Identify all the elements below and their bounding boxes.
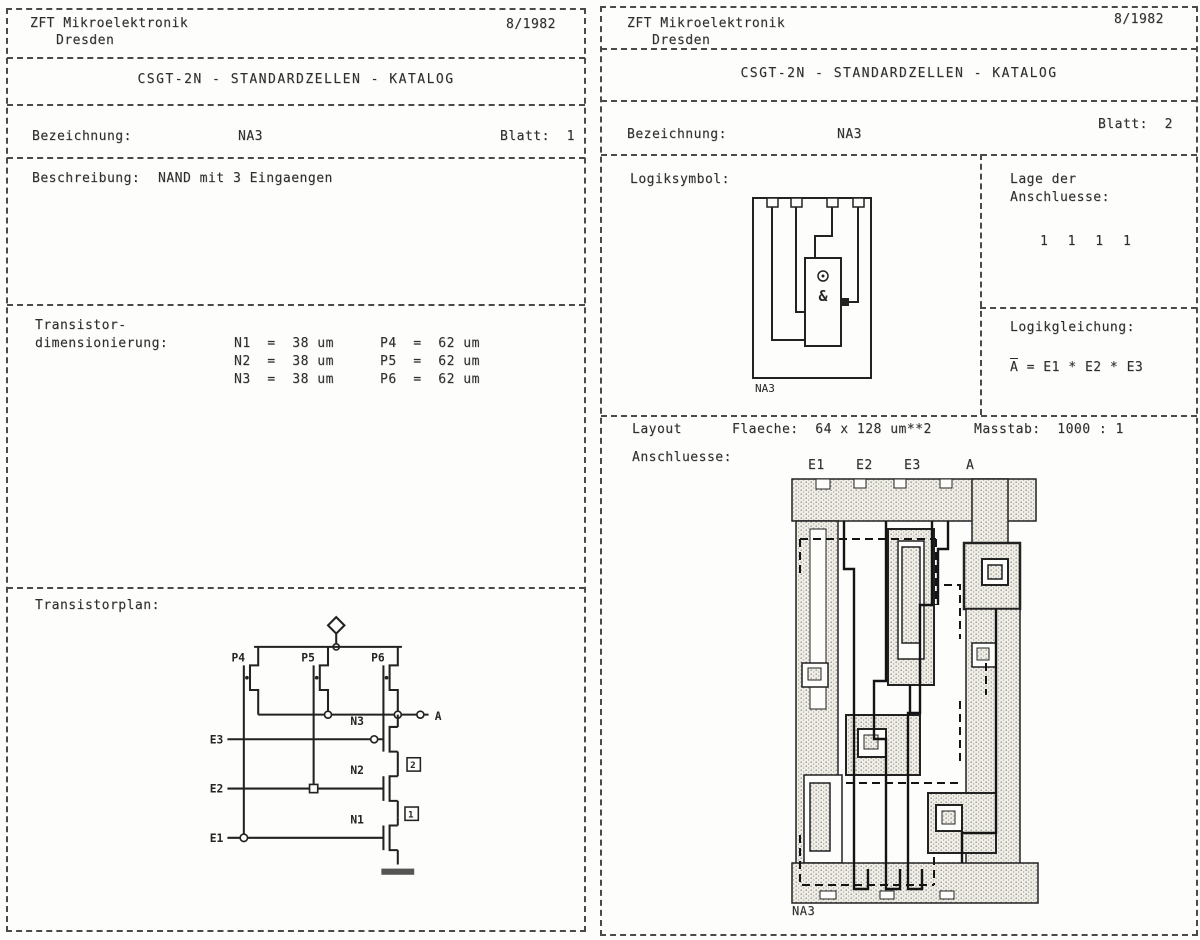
scanned-datasheet: ZFT Mikroelektronik Dresden 8/1982 CSGT-… — [0, 0, 1200, 940]
transistorplan-label: Transistorplan: — [35, 598, 160, 613]
divider — [7, 104, 585, 106]
nmos-n2 — [390, 776, 398, 817]
doc-date: 8/1982 — [1114, 12, 1164, 27]
lage-label-1: Lage der — [1010, 172, 1077, 187]
nmos-n3 — [390, 727, 398, 768]
label-a: A — [435, 710, 442, 723]
lage-label-2: Anschluesse: — [1010, 190, 1110, 205]
transistor-schematic: P4 P5 P6 N3 N2 N1 E3 E2 E1 A 2 1 — [163, 612, 493, 884]
blatt-number: Blatt: 1 — [500, 129, 575, 144]
dim-p4: P4 = 62 um — [380, 336, 480, 351]
beschreibung-value: NAND mit 3 Eingaengen — [158, 171, 333, 186]
label-p4: P4 — [232, 651, 246, 664]
pad-label-e1: E1 — [808, 458, 825, 473]
divider — [601, 100, 1197, 102]
logikgleichung-label: Logikgleichung: — [1010, 320, 1135, 335]
logikgleichung-eq: A = E1 * E2 * E3 — [1010, 360, 1143, 375]
label-e3: E3 — [210, 733, 224, 746]
label-p6: P6 — [371, 651, 385, 664]
cell-name: NA3 — [837, 127, 862, 142]
output-dot — [841, 298, 849, 306]
divider — [601, 415, 1197, 417]
nmos-n1 — [390, 825, 398, 864]
org-name: ZFT Mikroelektronik — [30, 16, 188, 31]
cell-layout — [790, 476, 1042, 906]
pin-notch — [827, 198, 838, 207]
dim-p6: P6 = 62 um — [380, 372, 480, 387]
dim-n3: N3 = 38 um — [234, 372, 334, 387]
beschreibung-label: Beschreibung: — [32, 171, 140, 186]
divider — [7, 587, 585, 589]
catalog-title: CSGT-2N - STANDARDZELLEN - KATALOG — [602, 66, 1196, 81]
label-n3: N3 — [350, 715, 364, 728]
route-e1 — [772, 207, 805, 340]
masstab-value: Masstab: 1000 : 1 — [974, 422, 1124, 437]
page-blatt-1: ZFT Mikroelektronik Dresden 8/1982 CSGT-… — [6, 8, 586, 932]
anschluesse-label: Anschluesse: — [632, 450, 732, 465]
dim-n2: N2 = 38 um — [234, 354, 334, 369]
ground-symbol — [381, 869, 414, 875]
dim-label-1: Transistor- — [35, 318, 127, 333]
label-node-2: 2 — [410, 760, 416, 771]
pin-notch — [791, 198, 802, 207]
pmos-p6 — [390, 647, 398, 715]
label-p5: P5 — [301, 651, 315, 664]
route-e2 — [796, 207, 805, 312]
vdd-symbol — [328, 617, 344, 633]
lage-values: 1 1 1 1 — [1040, 234, 1137, 249]
label-e2: E2 — [210, 783, 224, 796]
pad-label-a: A — [966, 458, 974, 473]
symbol-cell-name: NA3 — [755, 382, 775, 395]
label-n1: N1 — [350, 813, 364, 826]
pad-label-e3: E3 — [904, 458, 921, 473]
pmos-p4 — [250, 647, 258, 715]
dim-label-2: dimensionierung: — [35, 336, 168, 351]
cell-name: NA3 — [238, 129, 263, 144]
org-city: Dresden — [56, 33, 114, 48]
layout-label: Layout — [632, 422, 682, 437]
org-city: Dresden — [652, 33, 710, 48]
label-node-1: 1 — [408, 809, 414, 820]
layout-cell-name: NA3 — [792, 904, 815, 919]
bezeichnung-label: Bezeichnung: — [32, 129, 132, 144]
catalog-title: CSGT-2N - STANDARDZELLEN - KATALOG — [8, 72, 584, 87]
dim-n1: N1 = 38 um — [234, 336, 334, 351]
divider — [980, 307, 1197, 309]
pad-label-e2: E2 — [856, 458, 873, 473]
flaeche-value: Flaeche: 64 x 128 um**2 — [732, 422, 932, 437]
route-e3 — [815, 207, 832, 258]
blatt-number: Blatt: 2 — [1098, 117, 1173, 132]
dim-p5: P5 = 62 um — [380, 354, 480, 369]
and-gate-symbol: & — [818, 287, 828, 305]
divider — [7, 157, 585, 159]
org-name: ZFT Mikroelektronik — [627, 16, 785, 31]
pmos-p5 — [320, 647, 328, 715]
divider — [7, 57, 585, 59]
bezeichnung-label: Bezeichnung: — [627, 127, 727, 142]
page-blatt-2: ZFT Mikroelektronik Dresden 8/1982 CSGT-… — [600, 6, 1198, 936]
pin-notch — [853, 198, 864, 207]
eq-rhs: = E1 * E2 * E3 — [1018, 360, 1143, 375]
pin-notch — [767, 198, 778, 207]
logic-symbol: & NA3 — [747, 188, 882, 400]
label-n2: N2 — [350, 764, 364, 777]
logiksymbol-label: Logiksymbol: — [630, 172, 730, 187]
doc-date: 8/1982 — [506, 17, 556, 32]
divider — [7, 304, 585, 306]
divider — [980, 154, 982, 415]
route-a — [849, 207, 858, 302]
divider — [601, 154, 1197, 156]
divider — [601, 48, 1197, 50]
label-e1: E1 — [210, 832, 224, 845]
